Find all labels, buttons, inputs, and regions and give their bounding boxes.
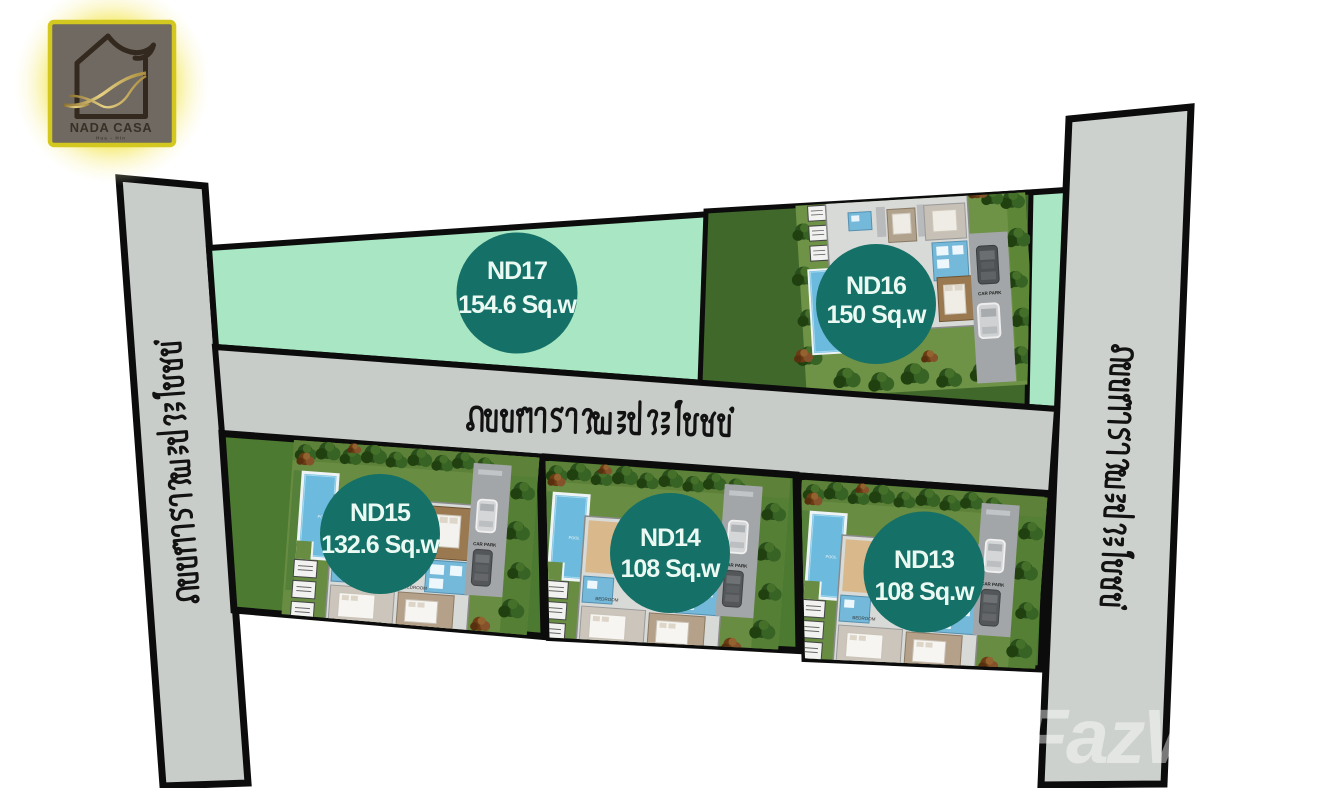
svg-text:132.6 Sq.w: 132.6 Sq.w [321, 531, 440, 559]
svg-text:ND14: ND14 [640, 524, 701, 552]
svg-text:ND15: ND15 [350, 499, 411, 527]
svg-text:108 Sq.w: 108 Sq.w [875, 578, 976, 606]
svg-text:ND17: ND17 [487, 257, 547, 285]
svg-text:FazW: FazW [1021, 694, 1222, 780]
svg-text:Hua - Hin: Hua - Hin [96, 136, 126, 141]
svg-text:NADA CASA: NADA CASA [70, 120, 153, 135]
svg-text:ND16: ND16 [846, 272, 906, 300]
svg-text:154.6 Sq.w: 154.6 Sq.w [458, 291, 577, 319]
svg-text:108 Sq.w: 108 Sq.w [621, 555, 722, 583]
svg-text:ND13: ND13 [894, 546, 954, 574]
svg-text:150 Sq.w: 150 Sq.w [827, 301, 928, 329]
